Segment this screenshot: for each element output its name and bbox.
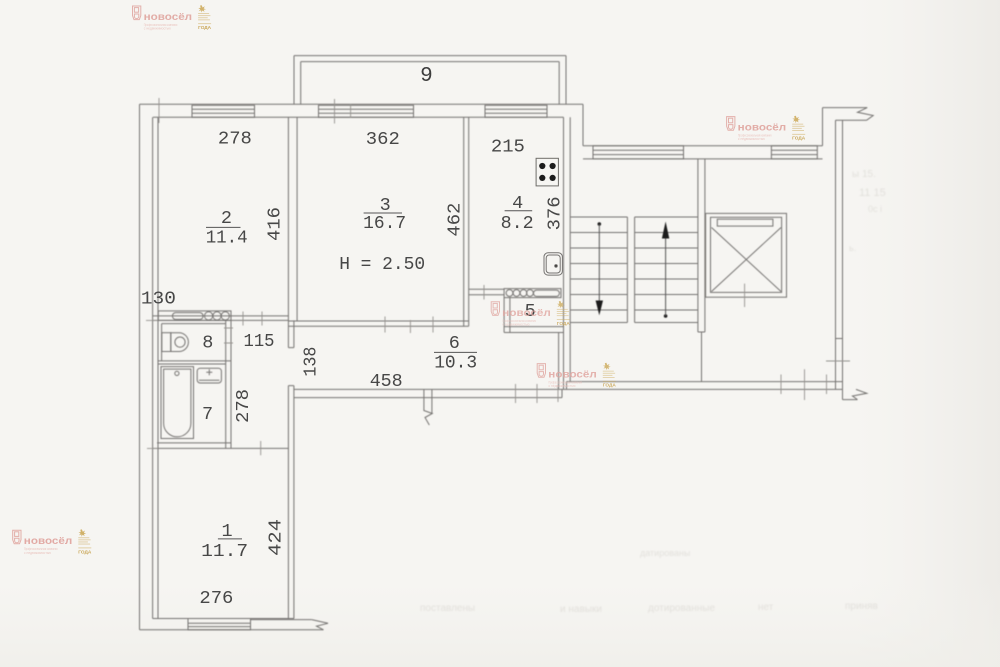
svg-text:11.4: 11.4 — [206, 228, 248, 249]
svg-text:и навыки: и навыки — [560, 604, 602, 615]
svg-text:458: 458 — [370, 371, 403, 392]
svg-text:215: 215 — [491, 137, 525, 158]
svg-text:11.7: 11.7 — [201, 541, 248, 562]
svg-text:278: 278 — [218, 129, 252, 150]
svg-text:7: 7 — [202, 404, 213, 425]
svg-text:0с і: 0с і — [868, 204, 882, 214]
svg-text:16.7: 16.7 — [363, 213, 406, 234]
svg-text:6: 6 — [449, 333, 460, 354]
svg-text:2: 2 — [221, 208, 232, 229]
svg-text:278: 278 — [233, 389, 254, 423]
svg-text:462: 462 — [444, 203, 465, 237]
svg-text:9: 9 — [420, 65, 433, 88]
svg-text:ы 15.: ы 15. — [852, 169, 876, 180]
svg-text:датированы: датированы — [640, 548, 690, 558]
svg-text:115: 115 — [244, 331, 275, 352]
svg-text:276: 276 — [199, 588, 233, 609]
svg-text:поставлены: поставлены — [420, 603, 475, 614]
svg-text:8: 8 — [202, 333, 213, 354]
svg-text:приняв: приняв — [845, 601, 878, 612]
svg-text:ь.: ь. — [849, 243, 856, 253]
svg-text:424: 424 — [265, 519, 286, 556]
svg-text:H = 2.50: H = 2.50 — [339, 254, 425, 275]
svg-text:376: 376 — [545, 196, 566, 230]
svg-text:138: 138 — [301, 347, 322, 377]
svg-text:416: 416 — [265, 207, 286, 241]
svg-text:8.2: 8.2 — [501, 213, 534, 234]
svg-text:нет: нет — [758, 602, 774, 613]
svg-text:11 15: 11 15 — [859, 187, 886, 199]
svg-text:дотированные: дотированные — [648, 603, 715, 614]
svg-text:130: 130 — [141, 289, 176, 310]
svg-text:10.3: 10.3 — [434, 352, 477, 373]
svg-text:362: 362 — [366, 129, 400, 150]
